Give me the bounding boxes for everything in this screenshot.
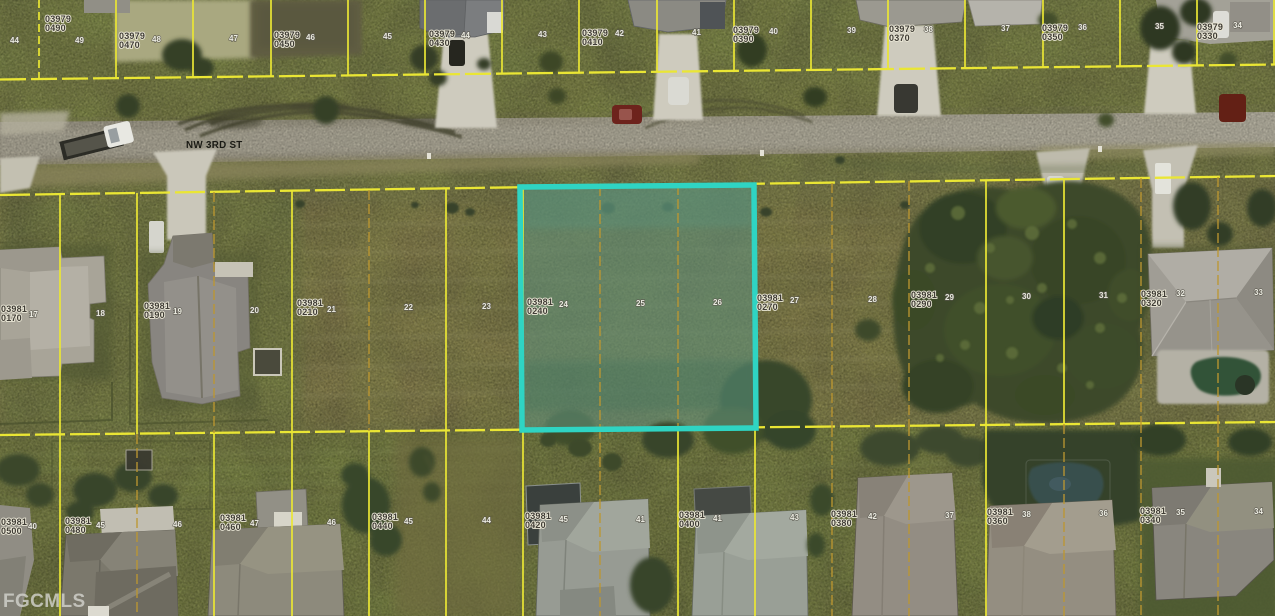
svg-text:41: 41 [636,515,645,524]
svg-text:48: 48 [152,35,161,44]
svg-text:42: 42 [868,512,877,521]
svg-text:32: 32 [1176,289,1185,298]
svg-text:34: 34 [1233,21,1242,30]
svg-text:43: 43 [790,513,799,522]
svg-text:47: 47 [229,34,238,43]
svg-text:28: 28 [868,295,877,304]
svg-text:20: 20 [250,306,259,315]
svg-text:36: 36 [1078,23,1087,32]
svg-text:38: 38 [924,25,933,34]
svg-text:41: 41 [692,28,701,37]
svg-text:25: 25 [636,299,645,308]
svg-text:40: 40 [769,27,778,36]
svg-text:45: 45 [559,515,568,524]
svg-text:42: 42 [615,29,624,38]
svg-text:34: 34 [1254,507,1263,516]
svg-text:22: 22 [404,303,413,312]
svg-text:17: 17 [29,310,38,319]
svg-text:47: 47 [250,519,259,528]
svg-text:44: 44 [10,36,19,45]
svg-text:43: 43 [538,30,547,39]
svg-text:NW 3RD ST: NW 3RD ST [186,140,243,151]
svg-text:40: 40 [28,522,37,531]
svg-text:36: 36 [1099,509,1108,518]
svg-text:31: 31 [1099,291,1108,300]
svg-text:45: 45 [96,521,105,530]
svg-text:24: 24 [559,300,568,309]
svg-text:18: 18 [96,309,105,318]
svg-text:37: 37 [945,511,954,520]
svg-text:45: 45 [404,517,413,526]
svg-text:45: 45 [383,32,392,41]
svg-text:41: 41 [713,514,722,523]
svg-text:38: 38 [1022,510,1031,519]
svg-text:46: 46 [327,518,336,527]
svg-text:35: 35 [1155,22,1164,31]
svg-text:19: 19 [173,307,182,316]
svg-text:35: 35 [1176,508,1185,517]
svg-text:26: 26 [713,298,722,307]
svg-text:30: 30 [1022,292,1031,301]
svg-text:27: 27 [790,296,799,305]
svg-text:39: 39 [847,26,856,35]
svg-text:44: 44 [482,516,491,525]
svg-text:49: 49 [75,36,84,45]
svg-text:23: 23 [482,302,491,311]
svg-text:46: 46 [173,520,182,529]
svg-text:FGCMLS: FGCMLS [3,591,86,612]
svg-text:44: 44 [461,31,470,40]
svg-text:37: 37 [1001,24,1010,33]
svg-text:29: 29 [945,293,954,302]
svg-text:33: 33 [1254,288,1263,297]
svg-text:21: 21 [327,305,336,314]
svg-text:46: 46 [306,33,315,42]
